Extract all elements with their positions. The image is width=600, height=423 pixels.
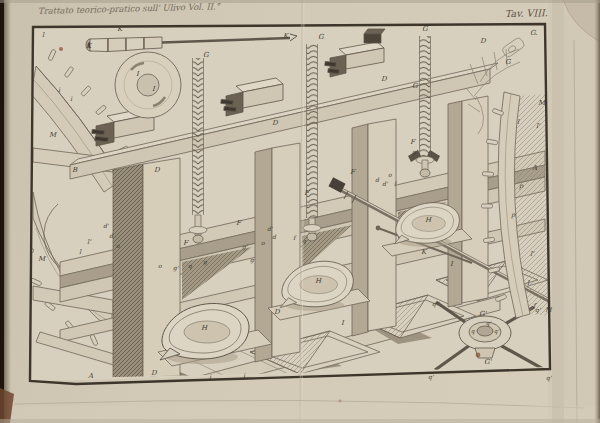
plate-number: Tav. VIII.: [505, 7, 548, 19]
plate-engraving-svg: Trattato teorico-pratico sull' Ulivo Vol…: [0, 0, 600, 423]
figure-label-p: p: [518, 182, 524, 190]
perforated-disc: [115, 52, 181, 118]
figure-label-q: q': [486, 320, 492, 327]
figure-label-o: o: [158, 262, 162, 269]
figure-label-o: o: [388, 171, 392, 178]
figure-label-A: A: [87, 372, 94, 380]
figure-label-B: B: [72, 166, 78, 174]
foxing-spot: [476, 353, 481, 358]
figure-label-o: o: [261, 239, 265, 246]
figure-label-H: H: [425, 216, 432, 224]
foxing-spot: [59, 47, 63, 51]
figure-label-o: o: [116, 242, 120, 249]
figure-label-G: G': [479, 310, 488, 318]
figure-label-H: H: [201, 324, 208, 332]
figure-label-G: G': [484, 358, 493, 366]
scanned-book-plate: Trattato teorico-pratico sull' Ulivo Vol…: [0, 0, 600, 423]
figure-label-p: p: [510, 211, 516, 219]
foxing-spot: [339, 400, 342, 403]
figure-label-A: A: [531, 164, 538, 172]
figure-label-q: q': [494, 328, 500, 335]
figure-label-G: G.: [530, 29, 538, 37]
figure-label-H: H: [315, 277, 322, 285]
